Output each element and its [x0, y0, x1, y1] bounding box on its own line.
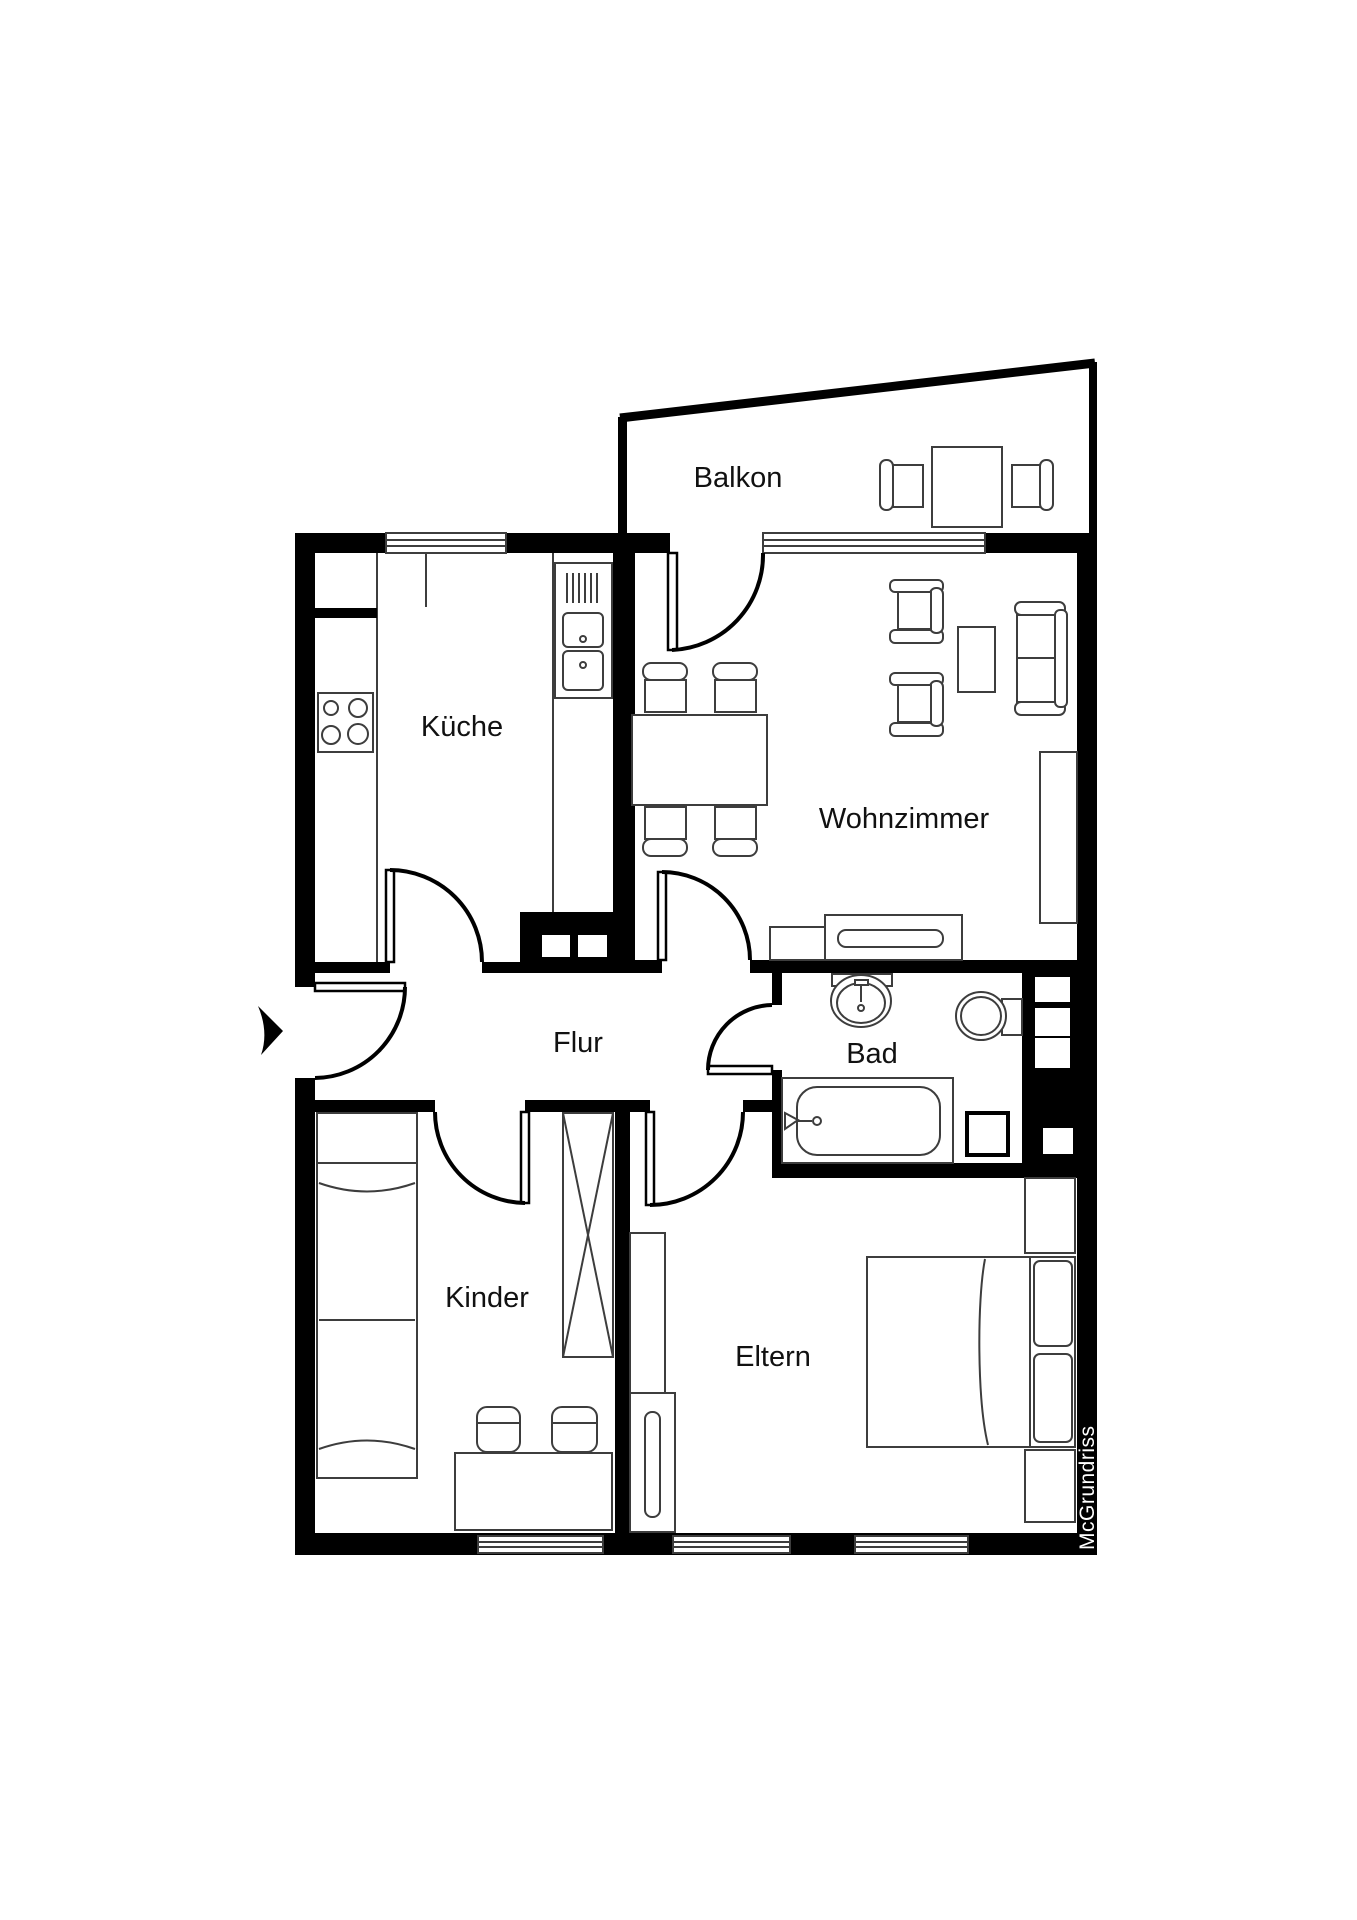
- eltern-furniture: [630, 1178, 1075, 1532]
- eltern-double-bed: [867, 1257, 1075, 1447]
- sideboard: [770, 915, 962, 960]
- watermark-text: McGrundriss: [1076, 1425, 1099, 1550]
- kinder-desk: [455, 1453, 612, 1530]
- balcony-chair-left: [880, 460, 923, 510]
- door-balcony: [668, 553, 763, 650]
- opening-kinder-door: [435, 1100, 525, 1112]
- shaft-box-bath-3: [1035, 1038, 1070, 1068]
- balcony-chair-right: [1012, 460, 1053, 510]
- wall-kitchen-shaft-block: [520, 912, 635, 973]
- wall-balcony-right: [1089, 362, 1097, 533]
- window-kitchen: [386, 533, 506, 553]
- dining-chair-bottom-right: [713, 807, 757, 856]
- washing-machine-icon: [967, 1113, 1008, 1155]
- armchair-top: [890, 580, 943, 643]
- room-label-bad: Bad: [846, 1038, 898, 1070]
- room-label-kueche: Küche: [421, 711, 503, 743]
- kinder-furniture: [317, 1113, 613, 1530]
- shaft-box-kitchen-2: [578, 935, 607, 957]
- window-eltern-2: [855, 1536, 968, 1553]
- shaft-box-bath-2: [1035, 1008, 1070, 1036]
- livingroom-cabinet: [1040, 752, 1077, 923]
- kinder-desk-chair-left: [477, 1407, 520, 1452]
- opening-livingroom-door: [662, 960, 750, 973]
- stove-icon: [318, 693, 373, 752]
- shaft-box-bath-4: [1043, 1128, 1073, 1154]
- eltern-wardrobe: [630, 1393, 675, 1532]
- shaft-box-bath-1: [1035, 977, 1070, 1002]
- bath-sink-icon: [831, 974, 892, 1027]
- door-kinder: [435, 1112, 529, 1203]
- wall-bath-bottom: [772, 1163, 1077, 1178]
- eltern-shelf: [630, 1233, 665, 1393]
- wall-balcony-slanted: [620, 363, 1095, 418]
- opening-entrance: [295, 987, 315, 1078]
- door-kitchen: [386, 870, 482, 962]
- toilet-icon: [956, 992, 1022, 1040]
- eltern-nightstand-top: [1025, 1178, 1075, 1253]
- dining-chair-top-right: [713, 663, 757, 712]
- room-label-wohnzimmer: Wohnzimmer: [819, 803, 990, 835]
- room-label-flur: Flur: [553, 1027, 603, 1059]
- opening-eltern-door: [650, 1100, 743, 1112]
- door-livingroom: [658, 872, 750, 960]
- window-eltern-1: [673, 1536, 790, 1553]
- door-entrance: [315, 983, 405, 1078]
- dining-chair-top-left: [643, 663, 687, 712]
- coffee-table: [958, 627, 995, 692]
- bathroom-fixtures: [782, 974, 1022, 1163]
- bathtub-icon: [782, 1078, 953, 1163]
- shaft-box-kitchen-1: [542, 935, 570, 957]
- kitchen-counter-divider: [315, 608, 377, 618]
- kitchen-sink-icon: [555, 563, 612, 698]
- window-livingroom: [763, 533, 985, 553]
- livingroom-furniture: [632, 580, 1077, 960]
- kinder-bed: [317, 1113, 417, 1478]
- eltern-nightstand-bottom: [1025, 1450, 1075, 1522]
- dining-table: [632, 715, 767, 805]
- wall-right: [1077, 533, 1097, 1555]
- kinder-desk-chair-right: [552, 1407, 597, 1452]
- window-kinder: [478, 1536, 603, 1553]
- kitchen-fixtures: [315, 553, 612, 962]
- opening-bath-door: [772, 1005, 782, 1070]
- wall-kinder-eltern: [615, 1112, 630, 1533]
- dining-chair-bottom-left: [643, 807, 687, 856]
- opening-kitchen-door: [390, 962, 482, 973]
- entrance-arrow-icon: [258, 1006, 283, 1055]
- floorplan-page: Balkon Küche Wohnzimmer Flur Bad Kinder …: [0, 0, 1357, 1920]
- floorplan-drawing: Balkon Küche Wohnzimmer Flur Bad Kinder …: [0, 0, 1357, 1920]
- room-label-balkon: Balkon: [694, 462, 783, 494]
- balcony-table: [932, 447, 1002, 527]
- wall-balcony-left: [618, 417, 627, 533]
- room-label-kinder: Kinder: [445, 1282, 529, 1314]
- door-bath: [708, 1005, 772, 1074]
- wall-bath-left: [772, 973, 782, 1178]
- balcony-furniture: [880, 447, 1053, 527]
- door-eltern: [646, 1112, 743, 1205]
- kinder-wardrobe: [563, 1113, 613, 1357]
- opening-balcony-door: [670, 533, 763, 553]
- armchair-bottom: [890, 673, 943, 736]
- room-label-eltern: Eltern: [735, 1341, 811, 1373]
- sofa: [1015, 602, 1067, 715]
